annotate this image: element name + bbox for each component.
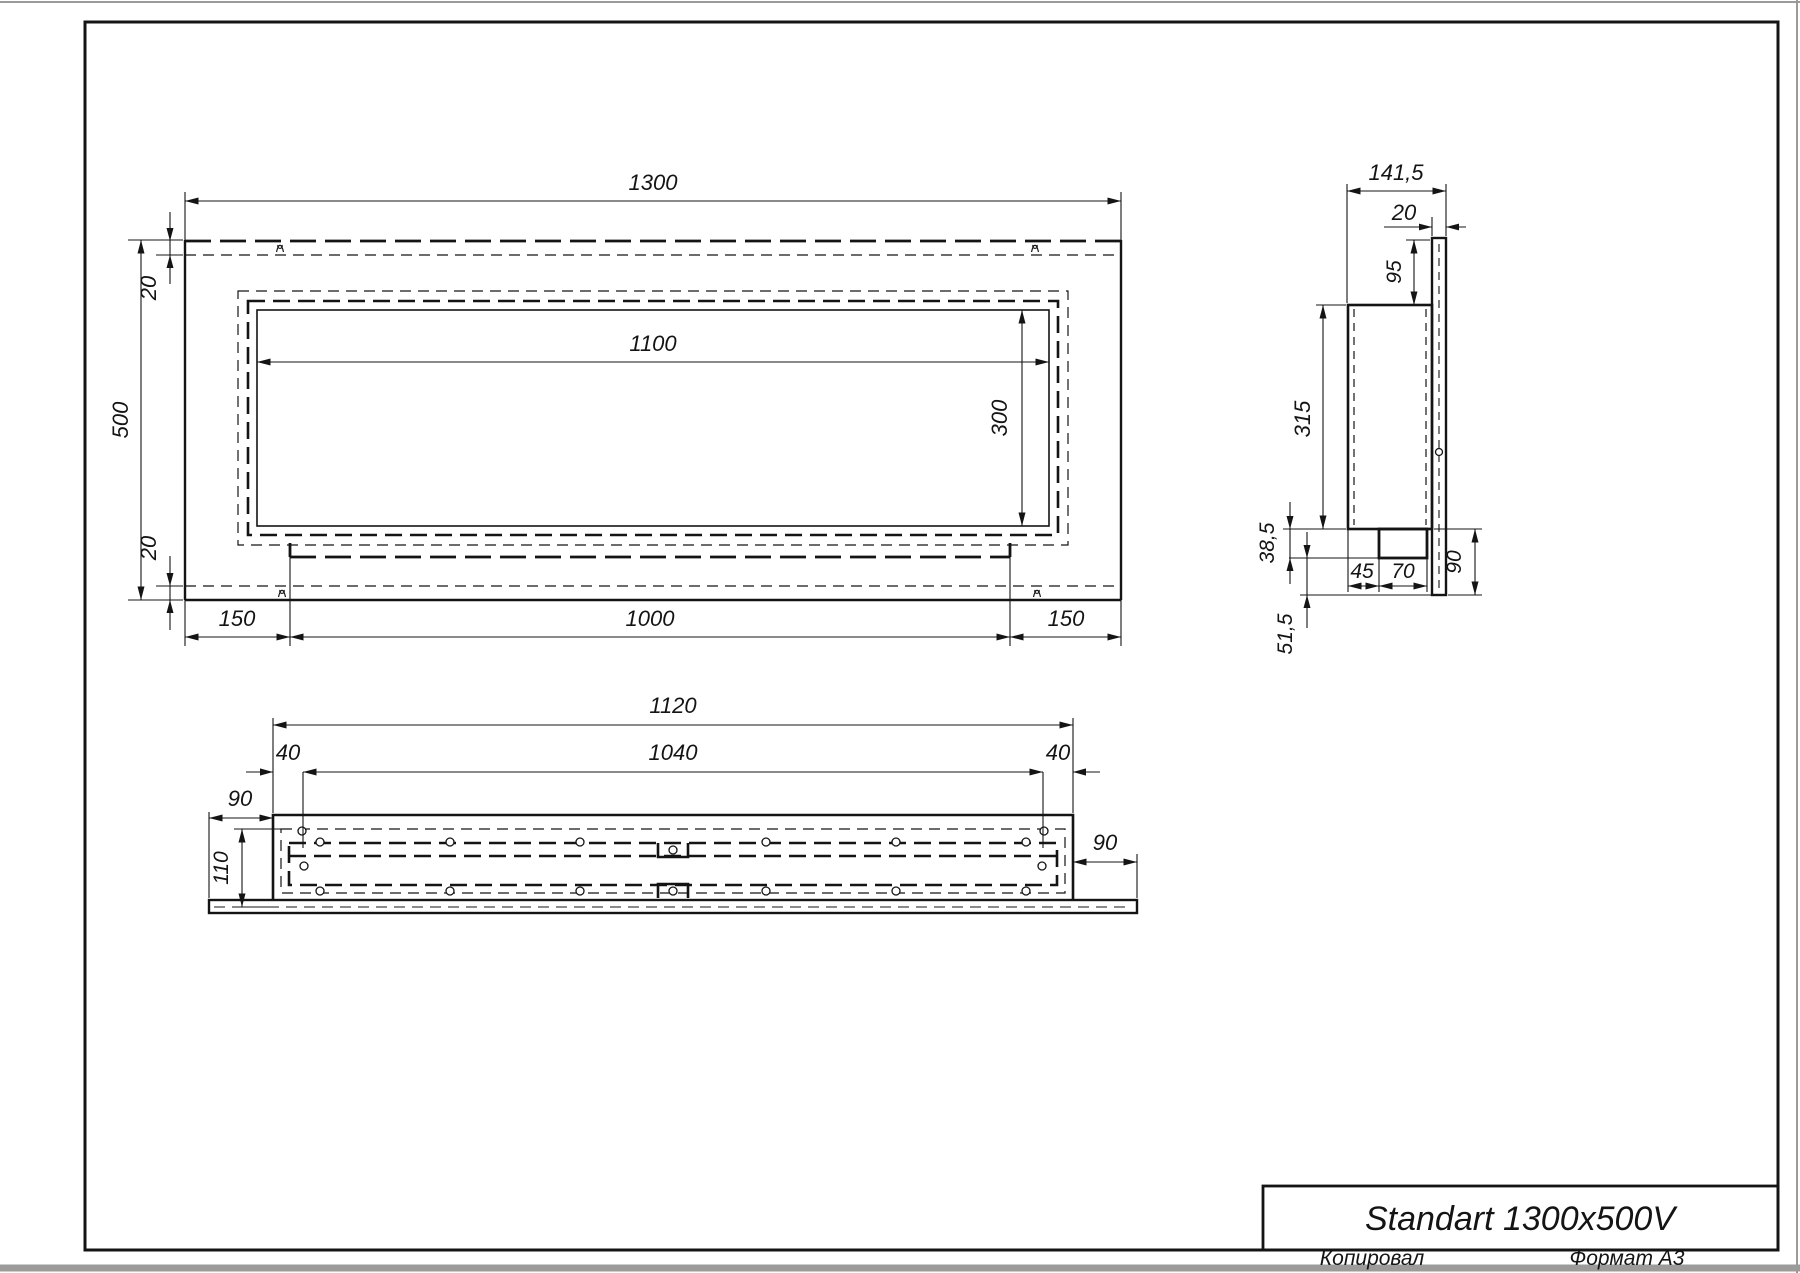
dim-bottom-total-width: 1120 [649,693,697,718]
dim-side-top-drop: 95 [1383,260,1406,284]
dim-side-step-down: 38,5 [1256,522,1279,563]
dim-bottom-right-end: 40 [1046,740,1071,765]
dim-front-bottom-gap: 20 [136,535,161,561]
side-body [1348,305,1432,529]
dim-bottom-inner-width: 1040 [649,740,699,765]
dim-side-bottom-drop: 51,5 [1274,613,1297,654]
title-block-model: Standart 1300x500V [1365,1200,1678,1238]
dim-front-opening-width: 1100 [629,331,677,356]
title-block: Standart 1300x500V [1263,1186,1778,1250]
dim-bottom-left-end: 40 [276,740,301,765]
dim-front-total-height: 500 [108,401,133,438]
dim-bottom-body-depth: 110 [210,851,233,885]
dim-bottom-right-flange: 90 [1093,830,1118,855]
panel-hole [1436,449,1443,456]
dim-side-total-depth: 141,5 [1368,160,1424,185]
dim-bottom-left-flange: 90 [228,786,253,811]
dim-side-panel-thickness: 20 [1391,200,1417,225]
dim-front-right-margin: 150 [1048,606,1085,631]
side-foot [1379,529,1427,558]
dim-front-total-width: 1300 [629,170,679,195]
dim-side-foot-inset: 45 [1350,560,1374,583]
front-view: 1300 500 20 20 1100 300 150 1000 150 [108,170,1121,646]
drawing-sheet: 1300 500 20 20 1100 300 150 1000 150 [0,0,1800,1273]
fastener-hook-icon [277,245,1041,597]
dim-side-body-height: 315 [1290,400,1315,437]
drawing-canvas: 1300 500 20 20 1100 300 150 1000 150 [0,0,1800,1273]
dim-side-foot-width: 70 [1391,560,1415,583]
dim-front-tab-width: 1000 [626,606,676,631]
footer-format: Формат А3 [1570,1247,1685,1270]
bottom-view: 1120 1040 40 40 90 110 90 [209,693,1137,913]
dim-front-top-gap: 20 [136,275,161,301]
side-view: 141,5 20 95 315 38,5 51,5 45 70 90 [1256,160,1482,654]
footer-copied-by: Копировал [1320,1247,1425,1270]
dim-front-left-margin: 150 [219,606,256,631]
dim-side-flange-height: 90 [1443,550,1466,574]
dim-front-opening-height: 300 [987,399,1012,436]
drawing-frame [85,22,1778,1250]
